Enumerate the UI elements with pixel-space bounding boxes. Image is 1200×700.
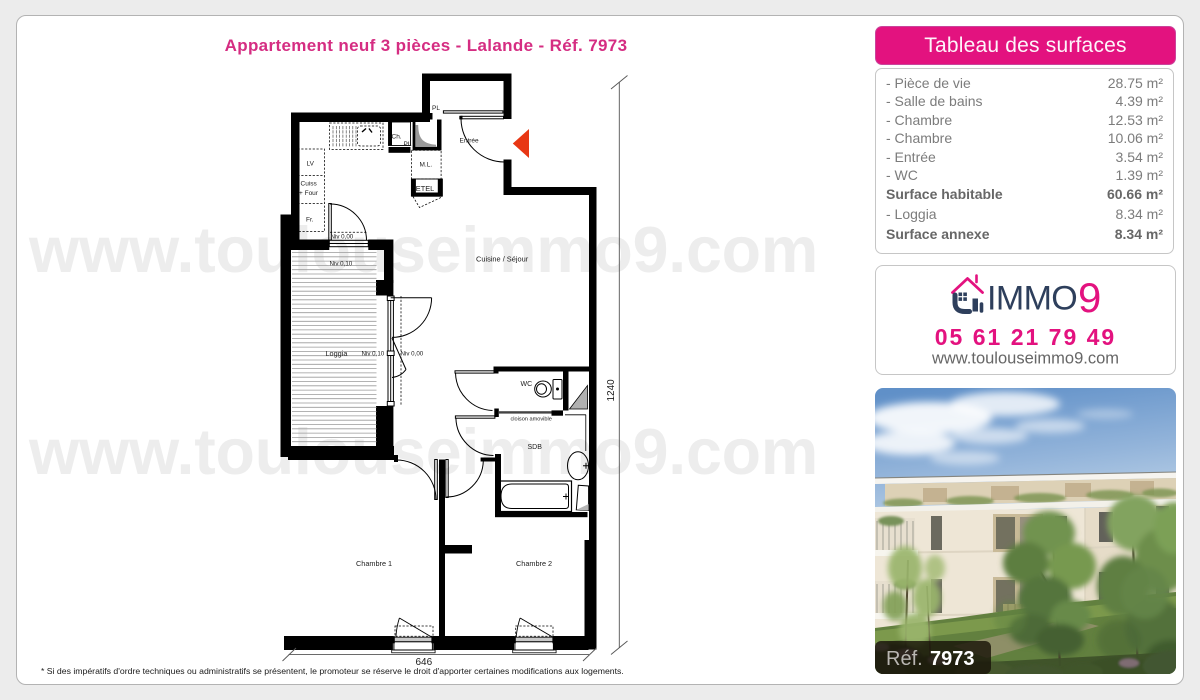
svg-text:Loggia: Loggia [326, 349, 349, 358]
svg-text:www.toulouseimmo9.com: www.toulouseimmo9.com [931, 350, 1119, 368]
svg-text:LV: LV [307, 161, 315, 168]
svg-text:+ Four: + Four [299, 190, 319, 197]
svg-text:Cuiss: Cuiss [301, 181, 318, 188]
svg-text:1240: 1240 [606, 379, 617, 402]
svg-text:Entrée: Entrée [460, 138, 480, 145]
svg-text:Niv 0,10: Niv 0,10 [362, 351, 385, 358]
svg-text:ETEL: ETEL [416, 184, 434, 193]
svg-text:Cuisine / Séjour: Cuisine / Séjour [476, 255, 529, 264]
svg-text:9: 9 [1078, 274, 1101, 321]
svg-text:7973: 7973 [930, 648, 975, 670]
svg-text:Niv 0,10: Niv 0,10 [330, 261, 353, 268]
svg-text:PL: PL [404, 141, 412, 148]
svg-text:IMMO: IMMO [987, 280, 1077, 318]
svg-text:SDB: SDB [528, 444, 543, 451]
svg-text:WC: WC [521, 381, 533, 388]
svg-text:Chambre 2: Chambre 2 [516, 559, 552, 568]
svg-text:Niv 0,00: Niv 0,00 [331, 234, 354, 241]
svg-text:Ch.: Ch. [392, 134, 402, 141]
svg-text:Chambre 1: Chambre 1 [356, 559, 392, 568]
svg-text:Niv 0,00: Niv 0,00 [401, 351, 424, 358]
svg-text:05 61 21 79 49: 05 61 21 79 49 [935, 324, 1116, 350]
svg-text:Fr.: Fr. [306, 217, 314, 224]
svg-text:cloison amovible: cloison amovible [511, 417, 552, 423]
svg-text:Réf.: Réf. [886, 648, 923, 670]
svg-text:PL: PL [432, 105, 440, 112]
svg-text:M.L.: M.L. [420, 162, 433, 169]
